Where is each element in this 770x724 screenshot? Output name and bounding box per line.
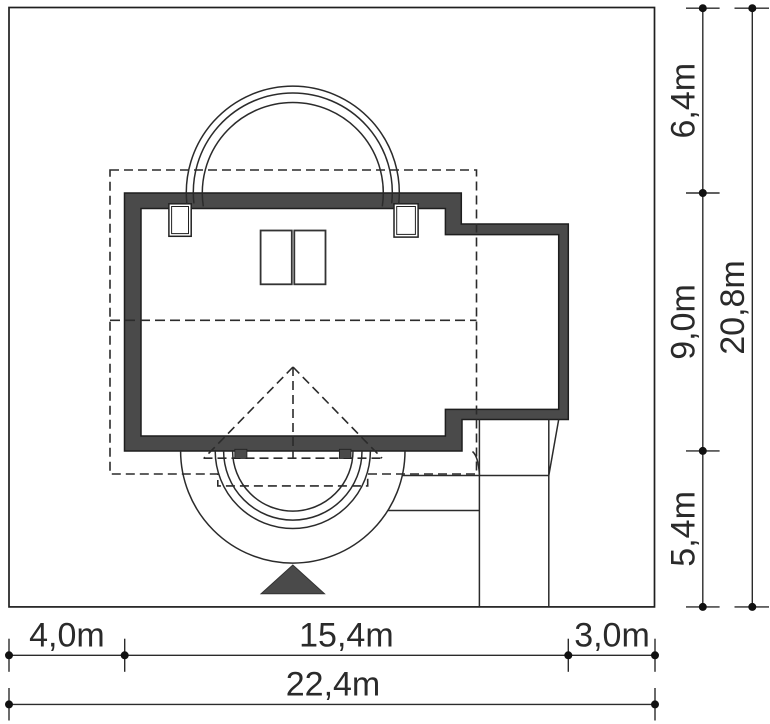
svg-text:3,0m: 3,0m [574,616,650,654]
svg-text:22,4m: 22,4m [286,666,381,704]
svg-text:4,0m: 4,0m [29,616,105,654]
svg-text:9,0m: 9,0m [665,284,703,360]
svg-text:20,8m: 20,8m [714,260,752,355]
svg-text:6,4m: 6,4m [665,63,703,139]
svg-text:15,4m: 15,4m [299,616,394,654]
svg-text:5,4m: 5,4m [665,491,703,567]
